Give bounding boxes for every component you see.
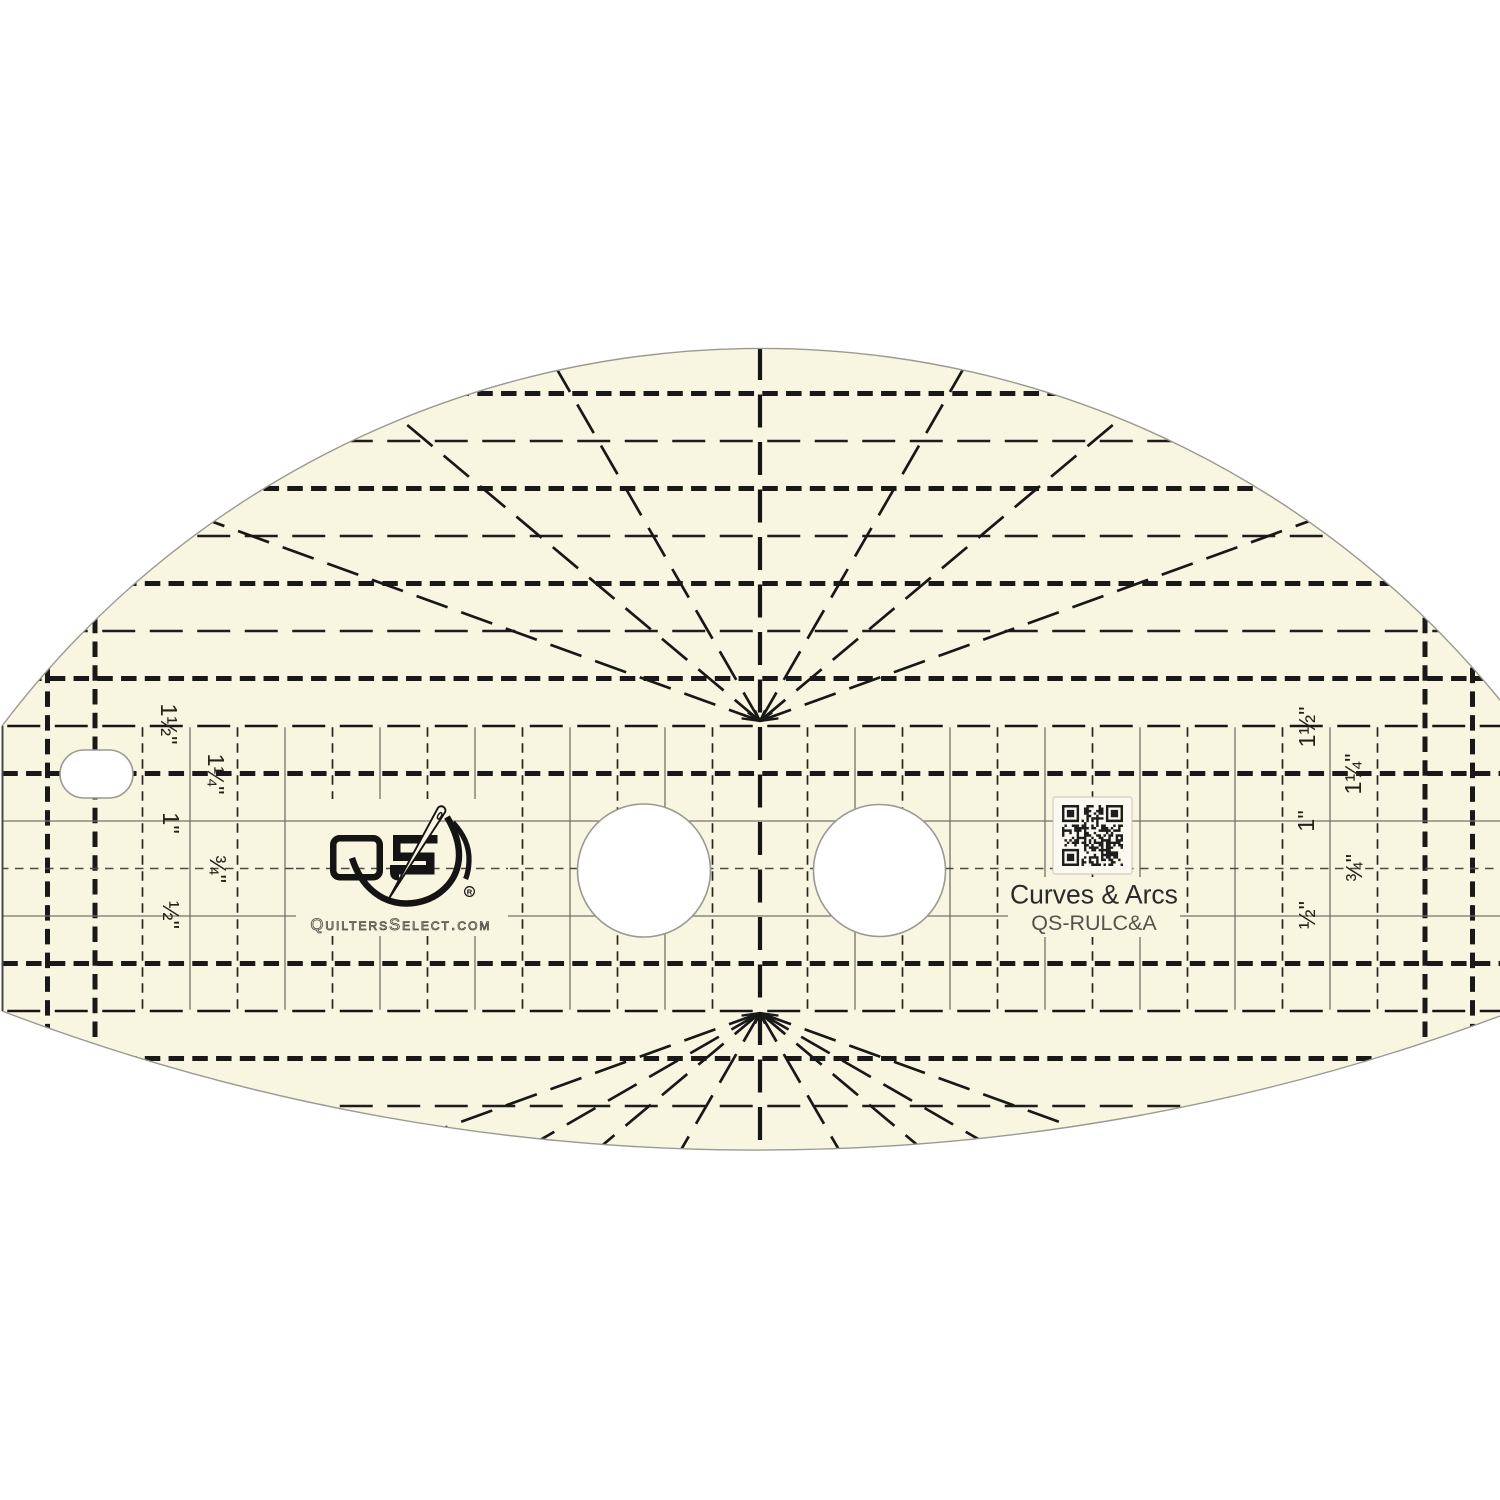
svg-text:¾": ¾" — [205, 855, 231, 883]
svg-text:1": 1" — [1293, 810, 1319, 831]
svg-text:1¼": 1¼" — [203, 753, 229, 794]
svg-text:QS-RULC&A: QS-RULC&A — [1031, 911, 1157, 935]
svg-text:¾": ¾" — [1341, 854, 1367, 882]
svg-text:QuiltersSelect.com: QuiltersSelect.com — [311, 916, 492, 934]
svg-text:1": 1" — [158, 812, 184, 833]
svg-text:R: R — [467, 887, 473, 896]
svg-text:½": ½" — [158, 901, 184, 929]
svg-text:1½": 1½" — [156, 703, 182, 744]
svg-text:1½": 1½" — [1294, 706, 1320, 747]
svg-text:1¼": 1¼" — [1340, 753, 1366, 794]
svg-text:Curves & Arcs: Curves & Arcs — [1010, 880, 1178, 910]
svg-text:½": ½" — [1294, 901, 1320, 929]
